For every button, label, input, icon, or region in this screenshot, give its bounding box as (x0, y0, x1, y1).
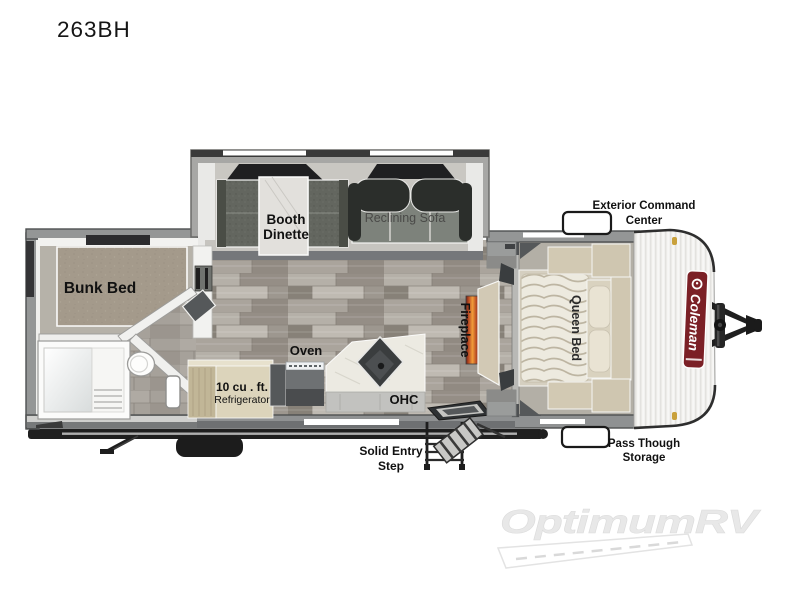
svg-text:Reclining Sofa: Reclining Sofa (365, 211, 446, 225)
svg-text:263BH: 263BH (57, 17, 131, 42)
svg-text:Refrigerator: Refrigerator (214, 394, 270, 406)
svg-text:Fireplace: Fireplace (458, 303, 472, 358)
svg-text:Coleman: Coleman (686, 294, 703, 352)
svg-text:10 cu . ft.: 10 cu . ft. (216, 380, 268, 394)
svg-text:Center: Center (626, 215, 663, 227)
svg-text:Queen Bed: Queen Bed (569, 295, 583, 361)
svg-text:Oven: Oven (290, 343, 323, 358)
svg-text:Step: Step (378, 459, 404, 473)
svg-text:Exterior Command: Exterior Command (593, 200, 696, 212)
svg-text:Dinette: Dinette (263, 227, 309, 242)
svg-text:OptimumRV: OptimumRV (500, 503, 761, 541)
svg-text:Booth: Booth (267, 212, 306, 227)
svg-text:Bunk Bed: Bunk Bed (64, 280, 136, 297)
svg-text:OHC: OHC (390, 392, 420, 407)
svg-text:Storage: Storage (623, 452, 666, 464)
svg-text:Solid Entry: Solid Entry (359, 444, 423, 458)
svg-text:Pass Though: Pass Though (608, 438, 680, 450)
